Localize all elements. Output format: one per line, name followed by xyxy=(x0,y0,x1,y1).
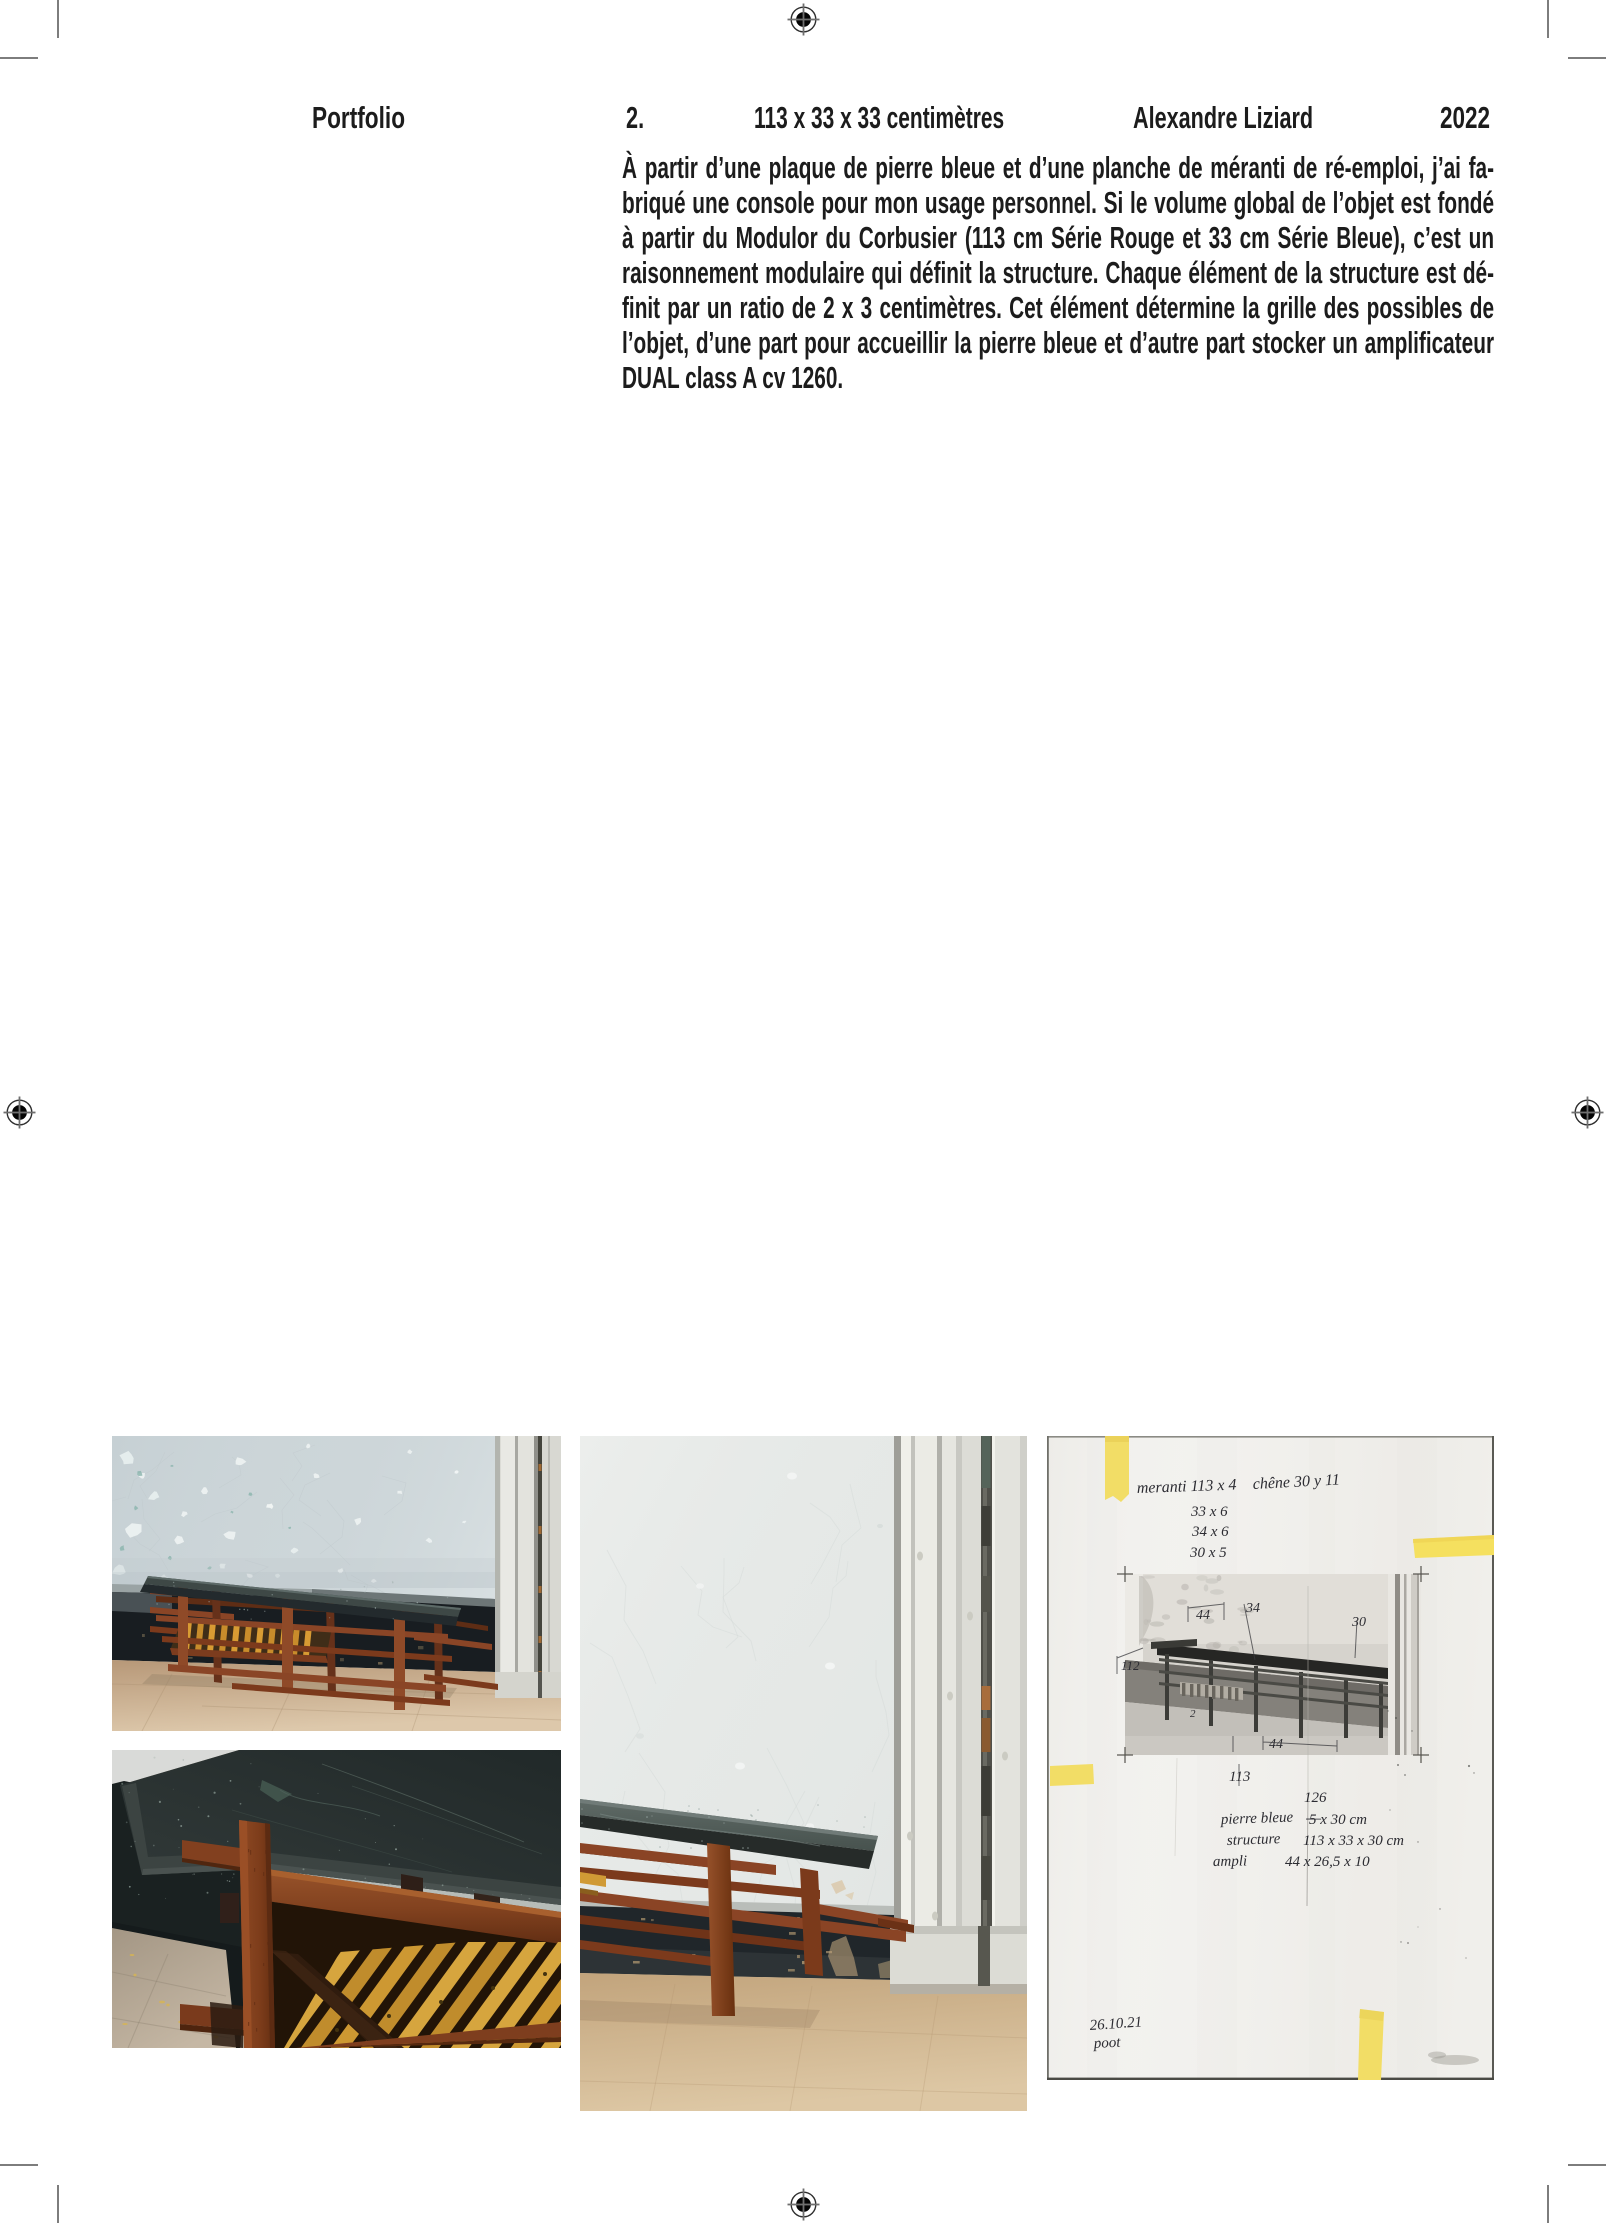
svg-text:poot: poot xyxy=(1092,2035,1121,2052)
svg-text:pierre bleue: pierre bleue xyxy=(1220,1809,1294,1828)
svg-text:̶̶5̶ x 30 cm: ̶̶5̶ x 30 cm xyxy=(1306,1812,1367,1828)
svg-text:126: 126 xyxy=(1304,1790,1327,1806)
svg-text:30 x 5: 30 x 5 xyxy=(1189,1545,1227,1561)
svg-text:2: 2 xyxy=(1190,1708,1196,1720)
svg-text:30: 30 xyxy=(1351,1615,1366,1630)
svg-text:structure: structure xyxy=(1227,1831,1281,1849)
svg-text:112: 112 xyxy=(1121,1658,1140,1673)
svg-text:44: 44 xyxy=(1269,1737,1283,1752)
svg-text:113 x 33 x 30 cm: 113 x 33 x 30 cm xyxy=(1303,1833,1404,1849)
svg-text:33 x 6: 33 x 6 xyxy=(1190,1504,1228,1520)
svg-text:44 x 26,5 x 10: 44 x 26,5 x 10 xyxy=(1285,1854,1370,1870)
svg-text:113: 113 xyxy=(1229,1769,1250,1785)
svg-text:ampli: ampli xyxy=(1213,1853,1247,1870)
svg-text:meranti 113 x 4: meranti 113 x 4 xyxy=(1137,1477,1237,1497)
svg-text:44: 44 xyxy=(1196,1608,1210,1623)
svg-text:34 x 6: 34 x 6 xyxy=(1191,1524,1229,1540)
svg-text:34: 34 xyxy=(1245,1601,1260,1616)
